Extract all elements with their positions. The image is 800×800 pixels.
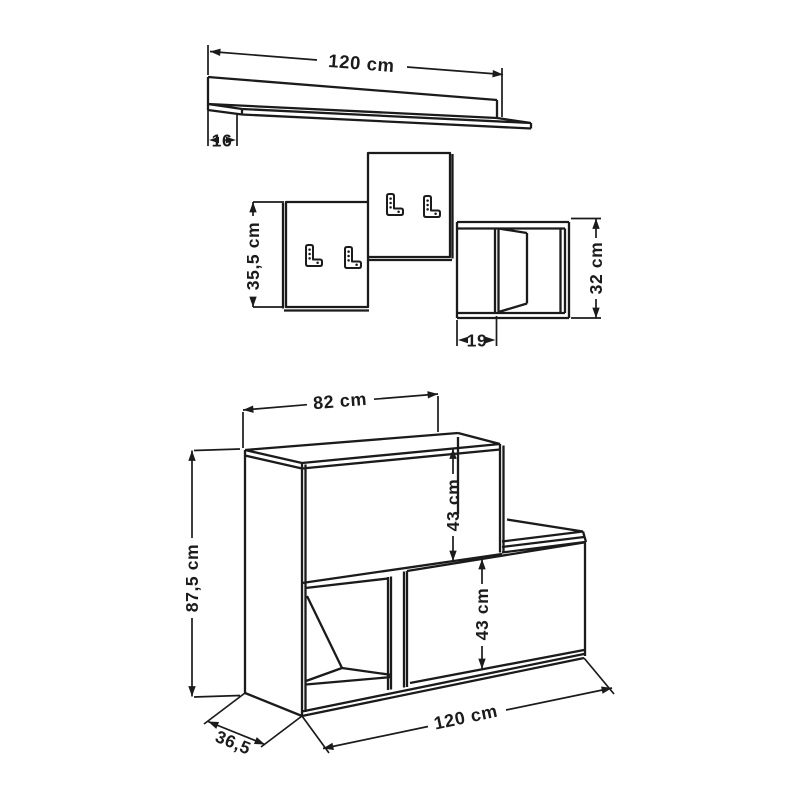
hall-bench-drawing: 82 cm 43 cm 43 cm 87,5 cm 120 cm 36,5 [182, 389, 614, 759]
shelf-width-label: 120 cm [328, 50, 396, 76]
bench-width-label: 120 cm [432, 701, 499, 734]
wall-shelf-drawing: 120 cm 16 [208, 45, 531, 151]
wall-hook-icon [345, 247, 361, 268]
cube-depth-label: 19 [467, 331, 488, 351]
furniture-dimension-diagram: 120 cm 16 35,5 cm 32 cm 19 [0, 0, 800, 800]
wall-cube-drawing: 32 cm 19 [457, 219, 606, 351]
shelf-width-dim-left [210, 52, 317, 61]
hall-bench-outline [245, 433, 586, 716]
wall-cube-outline [457, 222, 569, 318]
bench-lower-door-height-label: 43 cm [472, 588, 492, 641]
bench-top-width-label: 82 cm [312, 389, 368, 413]
hook-panels-drawing: 35,5 cm [243, 153, 453, 311]
bench-top-width-dim-right [374, 394, 438, 399]
cube-extension-lines [457, 219, 601, 347]
cube-height-label: 32 cm [586, 242, 606, 295]
bench-depth-label: 36,5 [213, 726, 254, 758]
bench-width-dim-right [506, 688, 612, 710]
shelf-width-dim-right [407, 67, 503, 75]
bench-upper-door-height-label: 43 cm [443, 479, 463, 532]
wall-shelf-outline [208, 77, 531, 129]
wall-hook-icon [387, 194, 403, 215]
bench-height-label: 87,5 cm [182, 544, 202, 612]
wall-hook-icon [424, 196, 440, 217]
shelf-depth-label: 16 [212, 131, 233, 151]
bench-top-width-dim-left [243, 405, 307, 410]
bench-width-dim-left [323, 727, 428, 749]
panels-height-label: 35,5 cm [243, 222, 263, 290]
furniture-dimension-diagram-page: 120 cm 16 35,5 cm 32 cm 19 [0, 0, 800, 800]
hook-panels-outline [283, 153, 453, 311]
wall-hook-icon [306, 245, 322, 266]
